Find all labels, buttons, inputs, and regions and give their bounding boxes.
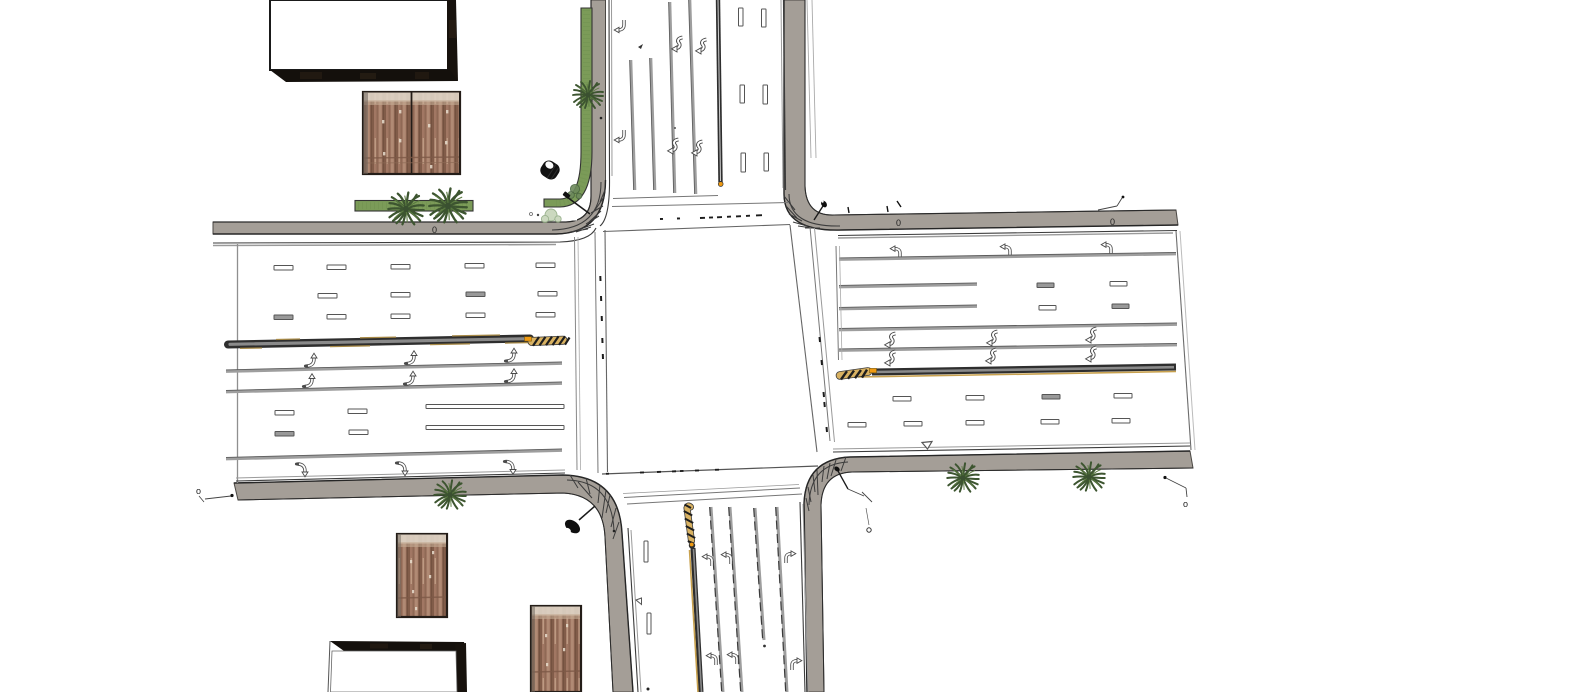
svg-text:0: 0: [432, 225, 437, 235]
svg-text:o: o: [1183, 499, 1188, 509]
svg-text:0: 0: [896, 218, 901, 228]
svg-text:o: o: [196, 486, 201, 496]
svg-text:0: 0: [1110, 217, 1115, 227]
